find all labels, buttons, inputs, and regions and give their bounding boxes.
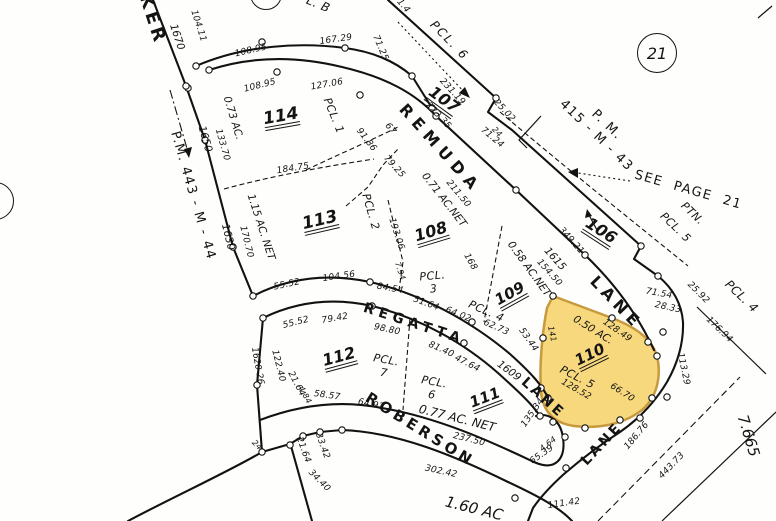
regatta-north-edge	[253, 278, 548, 398]
remuda-ne-edge	[388, 0, 683, 521]
pm443-arrowhead	[184, 147, 192, 158]
north-upper-curve	[196, 45, 432, 108]
parcel-map: 21 KERREMUDALANEREGATTALANEROBERSONLANEP…	[0, 0, 776, 521]
corner-tick	[758, 6, 772, 18]
southwest-spur	[291, 446, 312, 521]
east-boundary-line	[697, 307, 766, 374]
walker-street-edge	[153, 0, 253, 296]
bottom-right-line	[662, 412, 776, 521]
map-linework	[0, 0, 776, 521]
see-page-boundary	[500, 112, 688, 266]
lot-108-north-divider	[306, 126, 400, 170]
see-page-arrow-line	[578, 173, 630, 181]
roberson-south-edge	[128, 430, 572, 521]
vertex-markers	[183, 39, 670, 501]
remuda-sw-edge	[209, 59, 654, 350]
page-106-leader	[589, 215, 598, 232]
page-106-arrowhead	[585, 209, 592, 218]
lot-108-west-divider	[346, 149, 398, 206]
regatta-south-edge	[263, 302, 540, 416]
lot-108-109-divider	[484, 226, 502, 322]
lot-113-114-divider	[224, 159, 374, 189]
pcl6-dash-arrow	[398, 22, 466, 94]
lot-112-111-divider	[403, 318, 410, 410]
page-number-circle: 21	[637, 33, 677, 73]
lot-113-108-divider	[388, 200, 403, 290]
page-number: 21	[647, 44, 667, 63]
pm443-dash-dot	[170, 90, 188, 152]
highlighted-parcel-110[interactable]	[540, 296, 658, 427]
